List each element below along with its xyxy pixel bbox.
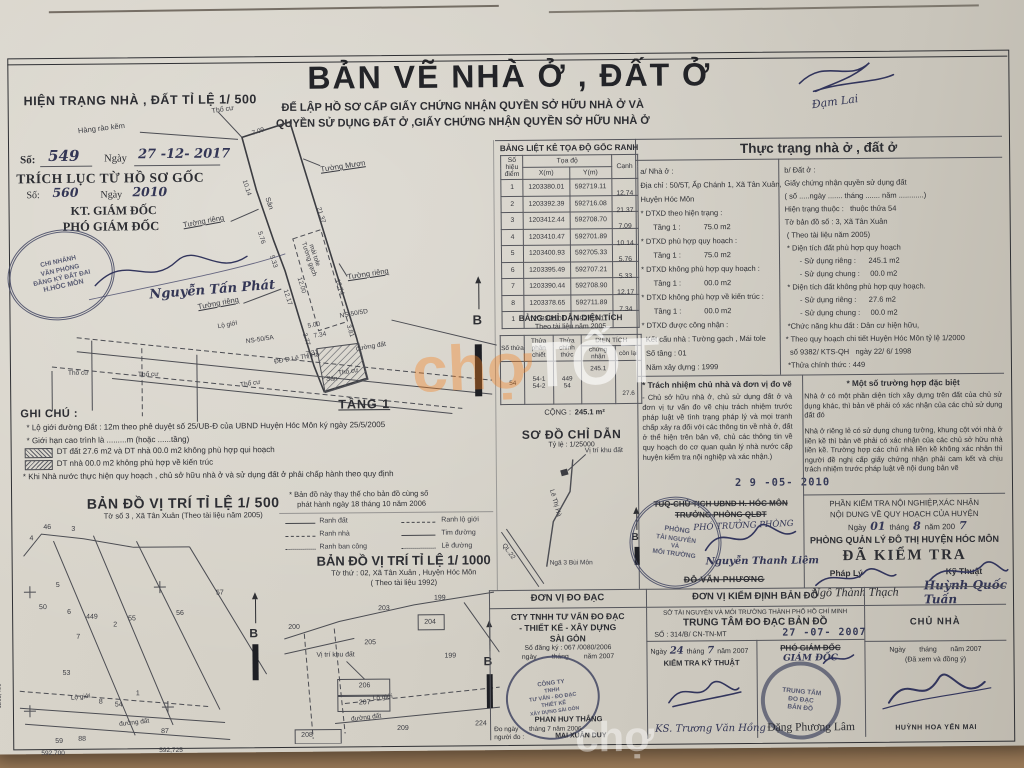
approve-signer-name: Nguyễn Thanh Liêm (706, 555, 819, 567)
map500-parcel: 57 (216, 590, 224, 597)
guide-map-label: Vị trí khu đất (585, 447, 623, 454)
inspection-date-year: 7 (959, 519, 967, 532)
guide-map-label: Ngã 3 Bùi Môn (550, 559, 593, 566)
north-label: B (472, 312, 482, 327)
map500-parcel: 4 (29, 535, 33, 542)
house-line: Năm xây dựng : 1999 (642, 360, 778, 375)
area-table-sum: CỘNG : 245.1 m² (544, 407, 605, 417)
status-title: Thực trạng nhà ở , đất ở (635, 139, 1002, 157)
owner-note: (Đã xem và đồng ý) (865, 656, 1007, 664)
map500-parcel: 50 (39, 604, 47, 611)
map500-parcel: 7 (76, 634, 80, 641)
guide-north-arrowhead (633, 507, 639, 514)
house-line: Địa chỉ : 50/5T, Ấp Chánh 1, Xã Tân Xuân… (640, 178, 776, 193)
surveyor-company-1: CTY TNHH TƯ VẤN ĐO ĐẠC (489, 611, 646, 622)
inspection-date-row: Ngày 01 tháng 8 năm 2007 (819, 519, 995, 534)
notes-title: GHI CHÚ : (20, 408, 78, 421)
map500-parcel: 87 (161, 728, 169, 735)
map500-north-bar (252, 644, 258, 680)
map1000-title: BẢN ĐỒ VỊ TRÍ TỈ LỆ 1/ 1000 (304, 552, 504, 569)
guide-map-title: SƠ ĐỒ CHỈ DẪN (500, 427, 642, 442)
special-cases-p2: Nhà ở riêng lẻ có sử dụng chung tường, k… (804, 425, 1002, 475)
map500-parcel: 59 (55, 738, 63, 745)
legend-replace-note-1: * Bản đồ này thay thế cho bản đồ cùng số (289, 489, 428, 499)
date-stamp-2707: 27 -07- 2007 (782, 627, 866, 639)
map500-coord: 592,725 (159, 747, 183, 754)
house-line: Huyện Hóc Môn (640, 192, 776, 207)
legend-label-ranh-nha: Ranh nhà (319, 530, 349, 537)
map1000-parcel: 206 (359, 682, 371, 689)
inspection-date-day: 01 (870, 520, 885, 533)
surveyor-company-2: - THIẾT KẾ - XÂY DỰNG (489, 622, 646, 633)
approve-signature-icon (699, 513, 799, 558)
house-line: * DTXD không phù hợp quy hoạch : (641, 262, 777, 277)
legend-label-ranh-lo-gioi: Ranh lộ giới (441, 516, 479, 523)
map1000-parcel: 200 (288, 624, 300, 631)
house-line: * DTXD theo hiện trạng : (641, 206, 777, 221)
map1000-sub2: ( Theo tài liệu 1992) (304, 577, 504, 588)
verifier-header: ĐƠN VỊ KIỂM ĐỊNH BẢN ĐỒ (646, 590, 864, 603)
map1000-parcel: 224 (475, 720, 487, 727)
surveyor-name: PHAN HUY THẮNG (490, 714, 647, 724)
house-line: Tầng 1 : 75.0 m2 (641, 248, 777, 263)
plan-label: Sân (326, 376, 338, 383)
plan-label: Thổ cư (138, 371, 159, 378)
area-table-title: BẢNG CHỈ DẪN DIỆN TÍCH (500, 313, 642, 323)
verifier-director-name: Đặng Phương Lâm (755, 721, 867, 734)
map1000-label: Vị trí khu đất (316, 651, 354, 658)
map500-parcel: 6 (67, 609, 71, 616)
verifier-date-e: năm 2007 (717, 648, 748, 655)
house-line: Tầng 1 : 00.0 m2 (641, 304, 777, 319)
owner-header: CHỦ NHÀ (864, 616, 1006, 628)
owner-signature-icon (879, 664, 995, 715)
house-line: Tầng 1 : 75.0 m2 (641, 220, 777, 235)
surveyor-company-3: SÀI GÒN (489, 633, 646, 644)
map1000-parcel: 204 (424, 619, 436, 626)
map1000-parcel: 205 (364, 639, 376, 646)
house-line: * DTXD không phù hợp về kiến trúc : (641, 290, 777, 305)
map500-parcel: 54 (115, 701, 123, 708)
map500-parcel: 449 (86, 614, 98, 621)
map500-parcel: 3 (71, 526, 75, 533)
map500-parcel: 88 (78, 736, 86, 743)
inspection-date-month: 8 (913, 519, 921, 532)
photo-top-edge (49, 5, 499, 13)
house-line: a/ Nhà ở : (640, 164, 776, 179)
north-bar (475, 344, 482, 396)
inspection-tech-name: Huỳnh Quốc Tuấn (924, 577, 1024, 606)
area-table: Số thửa Thửa phân chiết Thửa chính thức … (500, 334, 643, 405)
special-cases-p1: Nhà ở có một phần diện tích xây dựng trê… (804, 390, 1002, 421)
note-line-4: DT nhà 00.0 m2 không phù hợp về kiến trú… (57, 458, 213, 468)
inspection-date-suffix: năm 200 (925, 522, 955, 531)
verifier-director-signature-icon (820, 649, 856, 667)
map500-coord: 1203,400 (0, 683, 3, 708)
surveyor-reg: Số đăng ký : 067 /0080/2006 (489, 644, 646, 652)
surveyor-measurer-label: người đo : (494, 734, 524, 741)
inspection-date-prefix: Ngày (848, 523, 866, 532)
note-line-2: * Giới hạn cao trình là .........m (hoặc… (27, 435, 190, 445)
status-land-column: b/ Đất ở : Giấy chứng nhận quyền sử dụng… (784, 162, 1002, 372)
status-house-column: a/ Nhà ở : Địa chỉ : 50/5T, Ấp Chánh 1, … (640, 164, 778, 375)
map1000-sub1: Tờ thứ : 02, Xã Tân Xuân , Huyện Hóc Môn (304, 567, 504, 578)
map500-parcel: 5 (56, 582, 60, 589)
verifier-date-b: 24 (670, 646, 684, 657)
map1000-parcel: 199 (444, 652, 456, 659)
surveyor-measurer-name: MAI XUÂN DUY (555, 732, 606, 739)
map500-north-arrowhead (252, 592, 258, 599)
owner-name: HUỲNH HOA YẾN MAI (865, 724, 1007, 732)
date-stamp-2010: 2 9 -05- 2010 (735, 476, 830, 489)
plan-label: Thổ cư (68, 370, 89, 377)
inspection-date-mid: tháng (890, 523, 910, 532)
map500-coord: 592,700 (41, 750, 65, 757)
verifier-date-a: Ngày (650, 649, 666, 656)
responsibility-body: - Chủ sở hữu nhà ở, chủ sử dụng đất ở và… (642, 392, 793, 463)
page-title: BẢN VẼ NHÀ Ở , ĐẤT Ở (269, 56, 749, 97)
coord-table: Số hiệuđiểm Tọa độ Cạnh X(m) Y(m) 112033… (500, 154, 640, 329)
map500-parcel: 8 (99, 699, 103, 706)
verifier-check-signature-icon (663, 674, 743, 711)
guide-map-drawing (498, 446, 644, 592)
north-arrowhead (475, 276, 481, 283)
legend-label-tim-duong: Tim đường (441, 529, 475, 536)
house-line: Số tầng : 01 (642, 346, 778, 361)
floor-label: TẦNG 1 (338, 397, 390, 411)
map1000-parcel: 203 (378, 605, 390, 612)
owner-date: Ngày tháng năm 2007 (864, 646, 1006, 654)
land-line: *Thửa chính thức : 449 (786, 357, 1002, 372)
verifier-date-c: tháng (687, 648, 705, 655)
responsibility-title: * Trách nhiệm chủ nhà và đơn vị đo vẽ (642, 380, 792, 390)
map1000-parcel: 208 (301, 732, 313, 739)
photo-top-edge2 (549, 4, 979, 13)
note-line-3: DT đất 27.6 m2 và DT nhà 00.0 m2 không p… (57, 445, 275, 456)
house-line: Tầng 1 : 00.0 m2 (641, 276, 777, 291)
map1000-parcel: 207 (359, 699, 371, 706)
inspection-line-2: NỘI DUNG VỀ QUY HOẠCH CỦA HUYỆN (805, 509, 1003, 520)
special-cases-title: * Một số trường hợp đặc biệt (804, 378, 1002, 389)
area-table-subtitle: Theo tài liệu năm 2005 (500, 323, 642, 331)
hatch-legend-1 (25, 448, 53, 458)
inspection-office: PHÒNG QUẢN LÝ ĐÔ THỊ HUYỆN HÓC MÔN (805, 534, 1003, 546)
verifier-date-d: 7 (707, 645, 714, 656)
map500-parcel: 56 (176, 610, 184, 617)
map500-drawing (1, 522, 278, 744)
map1000-parcel: 199 (434, 595, 446, 602)
map500-north-label: B (249, 626, 258, 640)
document-paper: HIỆN TRẠNG NHÀ , ĐẤT TỈ LỆ 1/ 500 BẢN VẼ… (0, 0, 1024, 755)
legend-label-ranh-dat: Ranh đất (319, 517, 347, 524)
surveyor-header: ĐƠN VỊ ĐO ĐẠC (489, 592, 646, 604)
hatch-legend-2 (25, 460, 53, 470)
legend-label-le-duong: Lề đường (441, 542, 472, 549)
legend-label-ranh-ban-cong: Ranh ban công (319, 543, 367, 550)
map500-parcel: 55 (128, 615, 136, 622)
photo-of-survey-document: { "header": { "scale_note": "HIỆN TRẠNG … (0, 0, 1024, 768)
map500-parcel: 2 (113, 621, 117, 628)
house-line: Kết cấu nhà : Tường gạch , Mái tole (642, 332, 778, 347)
coord-table-title: BẢNG LIỆT KÊ TỌA ĐỘ GỐC RANH (498, 143, 640, 153)
verifier-check-label: KIỂM TRA KỸ THUẬT (649, 658, 755, 668)
verifier-no: SỐ : 314/B/ CN-TN-MT (654, 631, 726, 639)
map1000-parcel: 209 (397, 725, 409, 732)
map500-north-line (255, 599, 256, 623)
map500-parcel: 1 (136, 690, 140, 697)
approve-strike-3: ĐỖ VĂN PHƯƠNG (684, 574, 765, 585)
verifier-date-row: Ngày 24 tháng 7 năm 2007 (650, 645, 748, 657)
verifier-engineer-name: KS. Trương Văn Hồng (655, 723, 766, 735)
house-line: * DTXD phù hợp quy hoạch : (641, 234, 777, 249)
legend-replace-note-2: phát hành ngày 18 tháng 10 năm 2006 (297, 499, 426, 509)
north-line (478, 283, 479, 309)
map500-parcel: 53 (63, 670, 71, 677)
inspection-line-1: PHẦN KIỂM TRA NỘI NGHIỆP,XÁC NHẬN (805, 498, 1003, 509)
map500-parcel: 46 (43, 524, 51, 531)
house-line: * DTXD được công nhận : (642, 318, 778, 333)
